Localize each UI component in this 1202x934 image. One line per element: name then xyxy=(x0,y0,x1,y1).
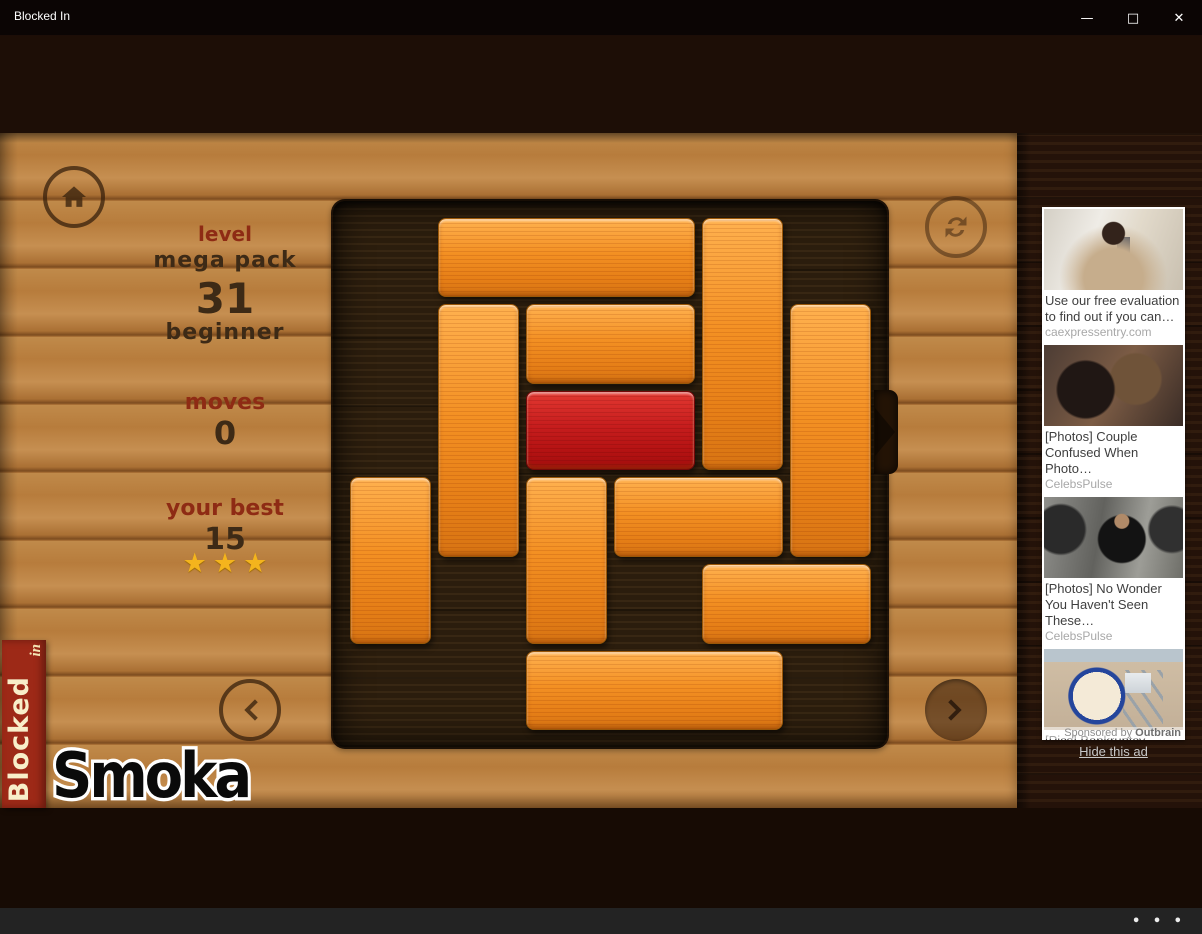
ad-source: CelebsPulse xyxy=(1042,629,1185,647)
puzzle-block[interactable] xyxy=(526,651,783,731)
sponsored-by-label: Sponsored by Outbrain xyxy=(1042,727,1185,739)
maximize-icon: □ xyxy=(1127,11,1139,26)
maximize-button[interactable]: □ xyxy=(1110,0,1156,36)
hide-ad-link[interactable]: Hide this ad xyxy=(1042,744,1185,759)
restart-icon xyxy=(938,209,974,245)
chevron-right-icon xyxy=(939,693,973,727)
pack-name: mega pack xyxy=(125,248,325,273)
ad-thumbnail[interactable] xyxy=(1044,345,1183,426)
top-letterbox xyxy=(0,36,1202,133)
chevron-left-icon xyxy=(233,693,267,727)
ad-panel: Use our free evaluation to find out if y… xyxy=(1042,207,1185,740)
star-icon: ★ xyxy=(213,548,237,579)
minimize-icon: — xyxy=(1081,11,1094,26)
puzzle-block[interactable] xyxy=(526,477,607,643)
target-block[interactable] xyxy=(526,391,695,471)
ad-item[interactable]: Use our free evaluation to find out if y… xyxy=(1042,209,1185,343)
ad-source: caexpressentry.com xyxy=(1042,325,1185,343)
puzzle-block[interactable] xyxy=(790,304,871,557)
bottom-letterbox xyxy=(0,808,1202,908)
puzzle-block[interactable] xyxy=(702,218,783,471)
next-level-button[interactable] xyxy=(925,679,987,741)
star-rating: ★★★ xyxy=(125,548,325,579)
puzzle-block[interactable] xyxy=(702,564,871,644)
moves-label: moves xyxy=(125,390,325,415)
level-number: 31 xyxy=(125,274,325,323)
window-title: Blocked In xyxy=(14,9,70,23)
puzzle-block[interactable] xyxy=(438,304,519,557)
ad-title[interactable]: [Photos] No Wonder You Haven't Seen Thes… xyxy=(1042,578,1185,629)
ad-title[interactable]: Use our free evaluation to find out if y… xyxy=(1042,290,1185,325)
difficulty-label: beginner xyxy=(125,320,325,345)
minimize-button[interactable]: — xyxy=(1064,0,1110,36)
level-label: level xyxy=(125,222,325,246)
banner-subtitle: in xyxy=(28,644,45,657)
outbrain-logo: Outbrain xyxy=(1135,727,1181,739)
ad-thumbnail[interactable] xyxy=(1044,649,1183,730)
restart-button[interactable] xyxy=(925,196,987,258)
close-button[interactable]: ✕ xyxy=(1156,0,1202,36)
close-icon: ✕ xyxy=(1174,11,1185,26)
star-icon: ★ xyxy=(183,548,207,579)
app-bottom-bar xyxy=(0,908,1202,934)
ad-thumbnail[interactable] xyxy=(1044,497,1183,578)
puzzle-block[interactable] xyxy=(526,304,695,384)
previous-level-button[interactable] xyxy=(219,679,281,741)
ad-source: CelebsPulse xyxy=(1042,477,1185,495)
ad-item[interactable]: [Photos] No Wonder You Haven't Seen Thes… xyxy=(1042,497,1185,647)
moves-value: 0 xyxy=(125,414,325,452)
puzzle-block[interactable] xyxy=(438,218,695,298)
watermark-text: Smoka xyxy=(52,740,249,813)
best-label: your best xyxy=(125,496,325,521)
blocked-in-banner: Blocked in xyxy=(2,640,46,808)
banner-title: Blocked xyxy=(4,676,35,802)
ad-thumbnail[interactable] xyxy=(1044,209,1183,290)
home-button[interactable] xyxy=(43,166,105,228)
ad-item[interactable]: [Photos] Couple Confused When Photo…Cele… xyxy=(1042,345,1185,495)
window-controls: — □ ✕ xyxy=(1064,0,1202,36)
app-window: Blocked In — □ ✕ • • • level xyxy=(0,0,1202,934)
home-icon xyxy=(57,180,91,214)
more-button[interactable]: • • • xyxy=(1132,908,1186,934)
star-icon: ★ xyxy=(243,548,267,579)
ad-title[interactable]: [Photos] Couple Confused When Photo… xyxy=(1042,426,1185,477)
puzzle-block[interactable] xyxy=(350,477,431,643)
puzzle-block[interactable] xyxy=(614,477,783,557)
title-bar: Blocked In — □ ✕ xyxy=(0,0,1202,36)
exit-arrow-icon xyxy=(875,408,895,456)
